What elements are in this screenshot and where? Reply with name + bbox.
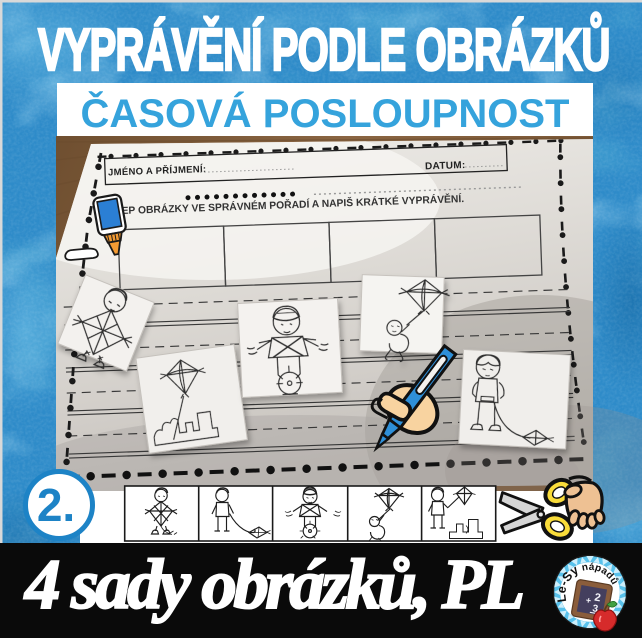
svg-text:VYPRÁVĚNÍ PODLE OBRÁZKŮ: VYPRÁVĚNÍ PODLE OBRÁZKŮ [38,13,610,83]
svg-text:2.: 2. [37,479,75,531]
svg-text:4 sady obrázků, PL: 4 sady obrázků, PL [23,546,525,624]
svg-text:ČASOVÁ POSLOUPNOST: ČASOVÁ POSLOUPNOST [81,90,570,136]
svg-text:DATUM:: DATUM: [425,160,466,172]
